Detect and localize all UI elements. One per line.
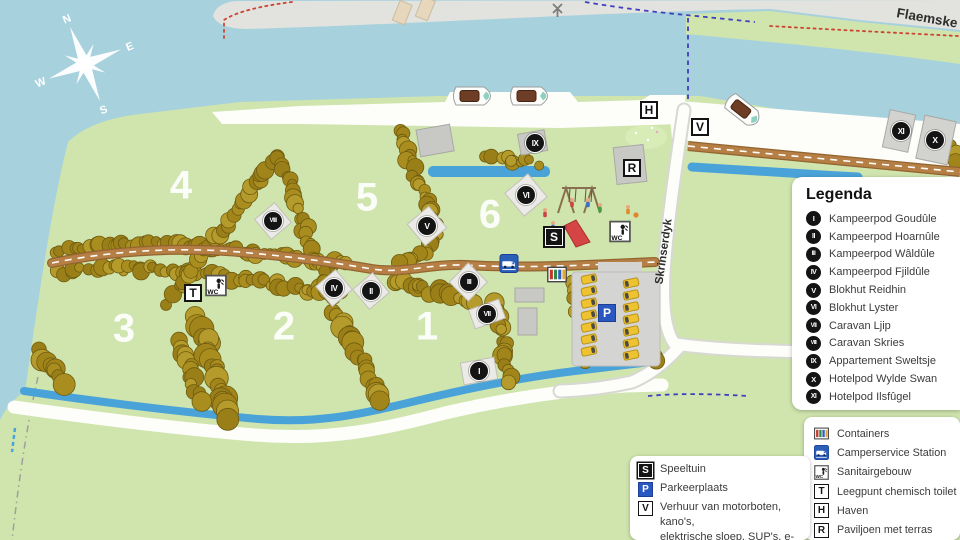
accommodation-label: Hotelpod Ilsfûgel [829, 391, 911, 403]
facility-label: Camperservice Station [837, 447, 946, 459]
accommodation-marker-icon: VI [806, 300, 821, 315]
facility-label: Leegpunt chemisch toilet [837, 486, 956, 498]
accommodation-label: Kampeerpod Fjildûle [829, 266, 930, 278]
accommodation-label: Blokhut Reidhin [829, 284, 906, 296]
accommodation-label: Kampeerpod Wâldûle [829, 248, 935, 260]
accommodation-label: Appartement Sweltsje [829, 355, 936, 367]
h-marker-icon: H [814, 503, 829, 518]
pond-canal [428, 166, 550, 177]
facility-row: TLeegpunt chemisch toilet [814, 482, 960, 501]
amenity-row: SSpeeltuin [638, 462, 810, 478]
amenity-label-line: Parkeerplaats [660, 481, 728, 496]
facility-row: RPaviljoen met terras [814, 520, 960, 539]
facility-label: Containers [837, 428, 889, 440]
sanitair-icon [814, 465, 829, 480]
legend-row: IIKampeerpod Hoarnûle [806, 228, 960, 246]
r-marker-icon: R [814, 523, 829, 538]
amenity-label: Parkeerplaats [660, 481, 728, 496]
accommodation-label: Caravan Ljip [829, 320, 891, 332]
legend-row: IIIKampeerpod Wâldûle [806, 246, 960, 264]
accommodation-marker-icon: IX [806, 354, 821, 369]
legend-row: IXAppartement Sweltsje [806, 352, 960, 370]
accommodation-marker-icon: VIII [806, 336, 821, 351]
legend-row: VIIICaravan Skries [806, 335, 960, 353]
amenities-list: SSpeeltuinPParkeerplaatsVVerhuur van mot… [638, 462, 810, 540]
accommodation-label: Blokhut Lyster [829, 302, 898, 314]
facility-row: Containers [814, 424, 960, 443]
facility-label: Paviljoen met terras [837, 524, 932, 536]
accommodation-marker-icon: X [806, 372, 821, 387]
amenity-label-line: Speeltuin [660, 462, 706, 477]
legend-accommodation-list: IKampeerpod GoudûleIIKampeerpod Hoarnûle… [806, 210, 960, 406]
camperservice-icon [814, 445, 829, 460]
accommodation-marker-icon: V [806, 283, 821, 298]
legend-row: VBlokhut Reidhin [806, 281, 960, 299]
facility-row: HHaven [814, 501, 960, 520]
accommodation-label: Kampeerpod Goudûle [829, 213, 937, 225]
facility-label: Haven [837, 505, 868, 517]
accommodation-marker-icon: VII [806, 318, 821, 333]
facility-row: Sanitairgebouw [814, 463, 960, 482]
accommodation-marker-icon: XI [806, 389, 821, 404]
amenity-label: Speeltuin [660, 462, 706, 477]
accommodation-marker-icon: IV [806, 265, 821, 280]
amenities-legend-panel: SSpeeltuinPParkeerplaatsVVerhuur van mot… [630, 456, 810, 540]
accommodation-marker-icon: III [806, 247, 821, 262]
legend-row: VIBlokhut Lyster [806, 299, 960, 317]
amenity-label-line: Verhuur van motorboten, kano's, [660, 500, 810, 530]
legend-row: XHotelpod Wylde Swan [806, 370, 960, 388]
parking-lot [572, 262, 660, 366]
v-marker-icon: V [638, 501, 653, 516]
legend-row: VIICaravan Ljip [806, 317, 960, 335]
accommodation-marker-icon: I [806, 211, 821, 226]
amenity-label-line2: elektrische sloep, SUP's, e-bikes [660, 530, 810, 540]
legend-title: Legenda [806, 186, 960, 204]
amenity-label: Verhuur van motorboten, kano's,elektrisc… [660, 500, 810, 540]
accommodation-label: Kampeerpod Hoarnûle [829, 231, 940, 243]
amenity-row: VVerhuur van motorboten, kano's,elektris… [638, 500, 810, 540]
accommodation-label: Hotelpod Wylde Swan [829, 373, 937, 385]
p-marker-icon: P [638, 482, 653, 497]
campground-map: WC [0, 0, 960, 540]
accommodation-marker-icon: II [806, 229, 821, 244]
facilities-legend-panel: ContainersCamperservice StationSanitairg… [804, 417, 960, 540]
facility-label: Sanitairgebouw [837, 466, 911, 478]
legend-row: XIHotelpod Ilsfûgel [806, 388, 960, 406]
t-marker-icon: T [814, 484, 829, 499]
facilities-list: ContainersCamperservice StationSanitairg… [814, 424, 960, 540]
legend-row: IVKampeerpod Fjildûle [806, 263, 960, 281]
facility-row: Camperservice Station [814, 443, 960, 462]
containers-icon [814, 426, 829, 441]
accommodation-label: Caravan Skries [829, 337, 904, 349]
legend-row: IKampeerpod Goudûle [806, 210, 960, 228]
legend-panel: Legenda IKampeerpod GoudûleIIKampeerpod … [792, 177, 960, 410]
s-marker-icon: S [638, 463, 653, 478]
amenity-row: PParkeerplaats [638, 481, 810, 497]
